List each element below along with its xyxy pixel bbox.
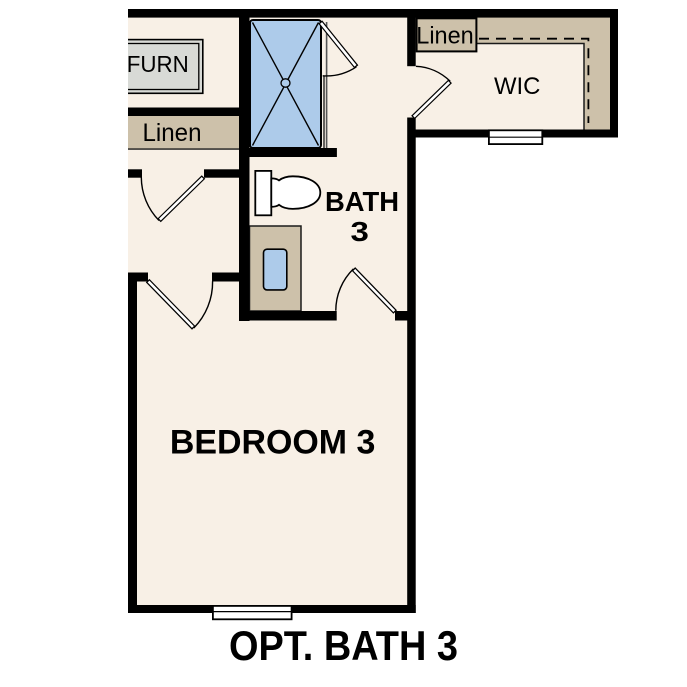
svg-text:BEDROOM 3: BEDROOM 3 (170, 423, 376, 461)
svg-text:FURN: FURN (127, 51, 189, 77)
svg-text:3: 3 (351, 217, 369, 247)
svg-text:Linen: Linen (143, 119, 202, 147)
svg-text:BATH: BATH (325, 186, 399, 217)
svg-text:WIC: WIC (494, 73, 541, 100)
svg-text:OPT. BATH 3: OPT. BATH 3 (229, 622, 458, 669)
svg-text:Linen: Linen (416, 22, 474, 49)
